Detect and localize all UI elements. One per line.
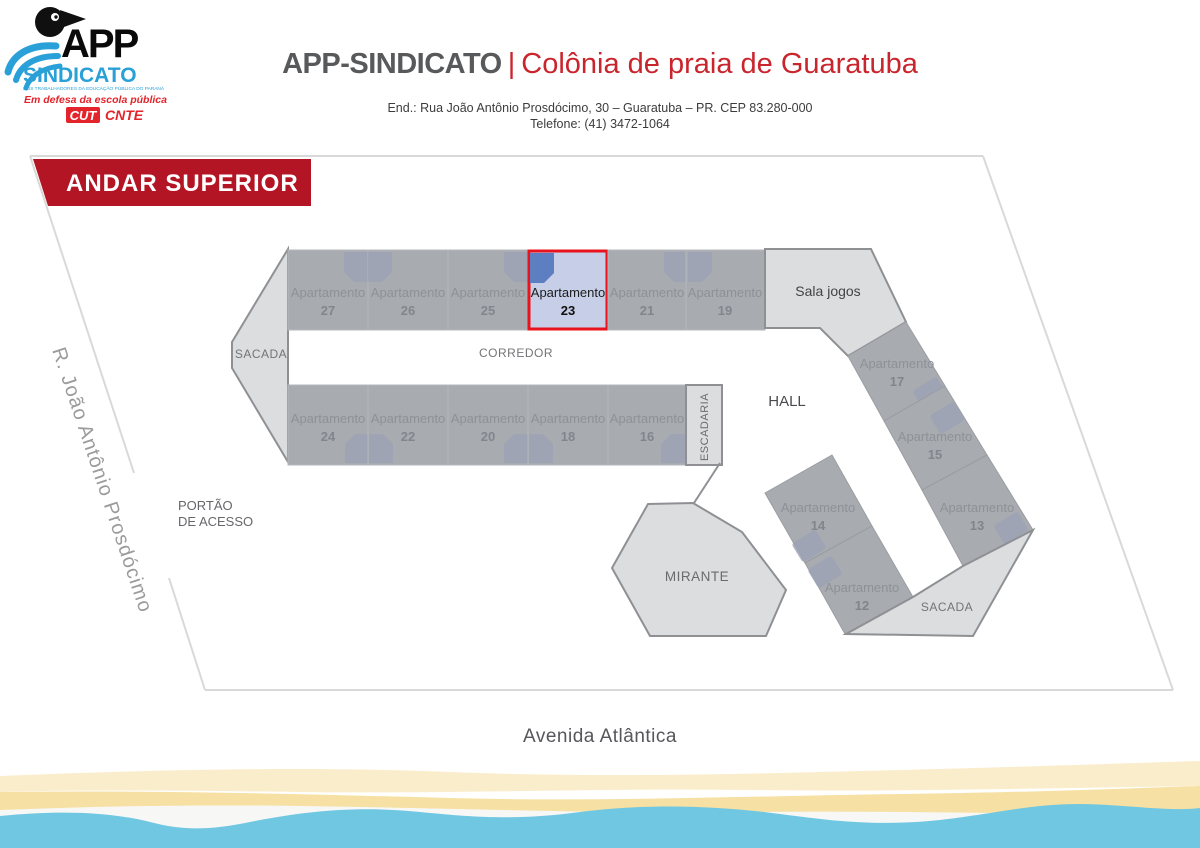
apartment-19[interactable]: Apartamento 19 bbox=[686, 250, 765, 330]
apartment-22[interactable]: Apartamento 22 bbox=[368, 385, 448, 465]
phone-line: Telefone: (41) 3472-1064 bbox=[0, 116, 1200, 132]
apartment-20[interactable]: Apartamento 20 bbox=[448, 385, 528, 465]
lookout-label: MIRANTE bbox=[665, 569, 729, 584]
apartment-25[interactable]: Apartamento 25 bbox=[448, 250, 528, 330]
apartment-label: Apartamento bbox=[371, 285, 445, 300]
apartment-number: 26 bbox=[401, 303, 415, 318]
apartment-number: 18 bbox=[561, 429, 575, 444]
apartment-label: Apartamento bbox=[688, 285, 762, 300]
apartment-label: Apartamento bbox=[531, 285, 605, 300]
cut-logo-text: CUT bbox=[70, 108, 98, 123]
apartment-label: Apartamento bbox=[451, 411, 525, 426]
apartment-number: 13 bbox=[970, 518, 984, 533]
apartment-number: 12 bbox=[855, 598, 869, 613]
stairs-label: ESCADARIA bbox=[699, 393, 711, 461]
address-block: End.: Rua João Antônio Prosdócimo, 30 – … bbox=[0, 100, 1200, 132]
logo-tagline-script: Em defesa da escola pública bbox=[24, 94, 167, 106]
apartment-number: 21 bbox=[640, 303, 654, 318]
apartment-number: 22 bbox=[401, 429, 415, 444]
app-sindicato-logo: APP SINDICATO DOS TRABALHADORES DA EDUCA… bbox=[0, 0, 175, 132]
address-line: End.: Rua João Antônio Prosdócimo, 30 – … bbox=[0, 100, 1200, 116]
apartment-label: Apartamento bbox=[531, 411, 605, 426]
hall-label: HALL bbox=[768, 393, 806, 410]
apartment-label: Apartamento bbox=[371, 411, 445, 426]
apartment-27[interactable]: Apartamento 27 bbox=[288, 250, 368, 330]
apartment-23-highlighted[interactable]: Apartamento 23 bbox=[529, 251, 607, 329]
page-title: APP-SINDICATO|Colônia de praia de Guarat… bbox=[0, 48, 1200, 81]
access-gate-line2: DE ACESSO bbox=[178, 514, 253, 529]
apartment-label: Apartamento bbox=[610, 285, 684, 300]
corridor-label: CORREDOR bbox=[479, 346, 553, 360]
apartment-label: Apartamento bbox=[898, 429, 972, 444]
access-gate-line1: PORTÃO bbox=[178, 498, 233, 513]
apartment-26[interactable]: Apartamento 26 bbox=[368, 250, 448, 330]
apartment-number: 16 bbox=[640, 429, 654, 444]
game-room-label: Sala jogos bbox=[795, 283, 860, 299]
apartment-number: 24 bbox=[321, 429, 336, 444]
apartment-number: 27 bbox=[321, 303, 335, 318]
logo-sindicato-text: SINDICATO bbox=[23, 64, 137, 87]
apartment-label: Apartamento bbox=[781, 500, 855, 515]
apartment-label: Apartamento bbox=[610, 411, 684, 426]
apartment-24[interactable]: Apartamento 24 bbox=[288, 385, 369, 465]
title-separator: | bbox=[502, 48, 522, 80]
apartment-18[interactable]: Apartamento 18 bbox=[528, 385, 608, 465]
sand-band-light bbox=[0, 761, 1200, 792]
apartment-label: Apartamento bbox=[451, 285, 525, 300]
walkway-line bbox=[694, 463, 720, 503]
apartment-label: Apartamento bbox=[940, 500, 1014, 515]
apartment-number: 15 bbox=[928, 447, 942, 462]
cnte-logo-text: CNTE bbox=[105, 107, 144, 123]
apartment-number: 23 bbox=[561, 303, 575, 318]
apartment-label: Apartamento bbox=[825, 580, 899, 595]
title-left: APP-SINDICATO bbox=[282, 48, 502, 80]
floor-banner: ANDAR SUPERIOR bbox=[33, 159, 311, 206]
access-gate-label: PORTÃO DE ACESSO bbox=[178, 498, 253, 529]
logo-app-text: APP bbox=[61, 22, 139, 66]
beach-graphic bbox=[0, 761, 1200, 848]
apartment-number: 19 bbox=[718, 303, 732, 318]
street-label-bottom: Avenida Atlântica bbox=[523, 726, 677, 747]
balcony-left: SACADA bbox=[232, 249, 288, 462]
apartment-label: Apartamento bbox=[291, 411, 365, 426]
apartment-label: Apartamento bbox=[291, 285, 365, 300]
apartment-16[interactable]: Apartamento 16 bbox=[608, 385, 686, 465]
balcony-right-label: SACADA bbox=[921, 600, 973, 614]
logo-tagline-small: DOS TRABALHADORES DA EDUCAÇÃO PÚBLICA DO… bbox=[23, 85, 165, 92]
street-label-left: R. João Antônio Prosdócimo bbox=[47, 345, 156, 616]
apartment-number: 25 bbox=[481, 303, 495, 318]
apartment-number: 14 bbox=[811, 518, 826, 533]
page: APP-SINDICATO|Colônia de praia de Guarat… bbox=[0, 0, 1200, 848]
apartment-number: 17 bbox=[890, 374, 904, 389]
apartment-label: Apartamento bbox=[860, 356, 934, 371]
balcony-left-label: SACADA bbox=[235, 347, 287, 361]
apartment-21[interactable]: Apartamento 21 bbox=[608, 250, 688, 330]
apartment-number: 20 bbox=[481, 429, 495, 444]
title-right: Colônia de praia de Guaratuba bbox=[521, 48, 918, 80]
stairs: ESCADARIA bbox=[686, 385, 722, 465]
floor-banner-label: ANDAR SUPERIOR bbox=[66, 170, 299, 197]
lookout: MIRANTE bbox=[612, 503, 786, 636]
